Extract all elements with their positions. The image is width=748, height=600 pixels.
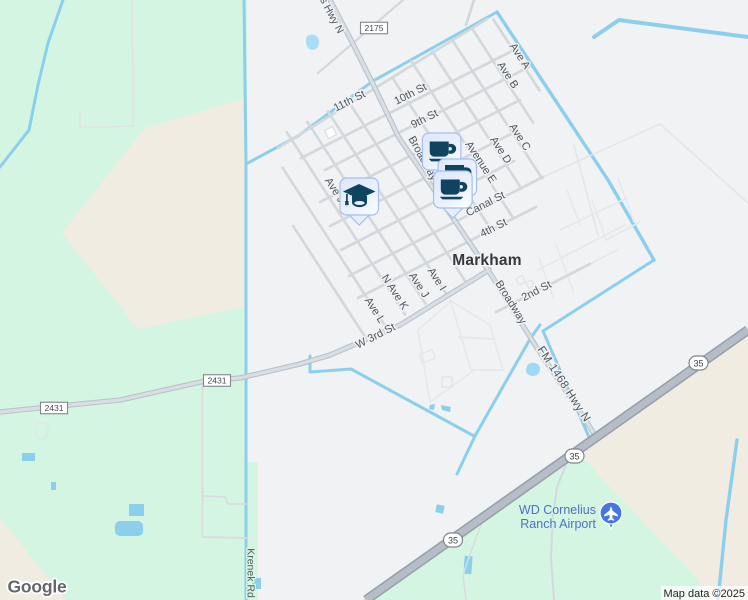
svg-text:WD Cornelius: WD Cornelius [519,503,596,517]
svg-text:2175: 2175 [364,23,383,33]
svg-text:2431: 2431 [207,376,226,386]
svg-text:35: 35 [569,451,579,461]
svg-text:35: 35 [448,535,458,545]
svg-text:Markham: Markham [452,252,521,269]
svg-text:Map data ©2025: Map data ©2025 [664,588,746,600]
svg-text:2431: 2431 [44,403,63,413]
svg-text:Ranch Airport: Ranch Airport [520,517,596,531]
svg-text:35: 35 [693,358,703,368]
svg-text:Krenek Rd: Krenek Rd [245,548,257,598]
svg-text:Google: Google [8,577,68,597]
